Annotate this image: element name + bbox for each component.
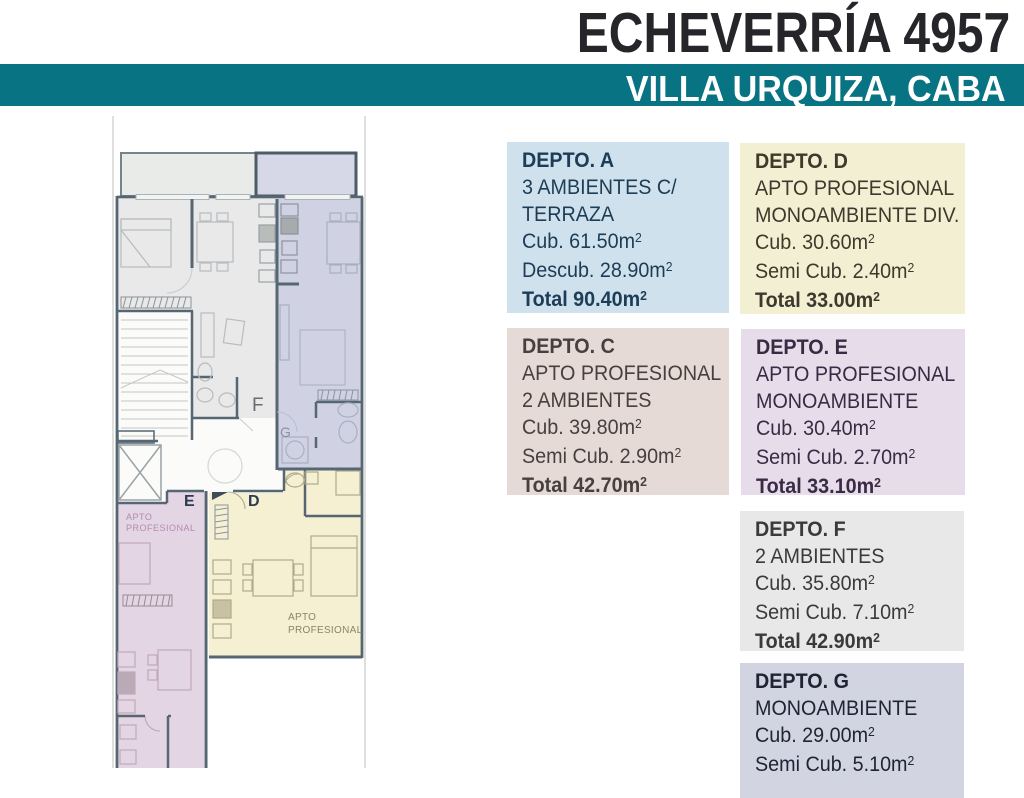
svg-text:PROFESIONAL: PROFESIONAL [288, 625, 363, 636]
svg-text:F: F [252, 395, 264, 416]
svg-text:PROFESIONAL: PROFESIONAL [126, 523, 196, 533]
svg-text:APTO: APTO [288, 612, 316, 623]
svg-text:APTO: APTO [126, 512, 152, 522]
svg-text:G: G [280, 424, 291, 440]
svg-text:E: E [184, 493, 195, 510]
svg-text:D: D [248, 493, 260, 510]
